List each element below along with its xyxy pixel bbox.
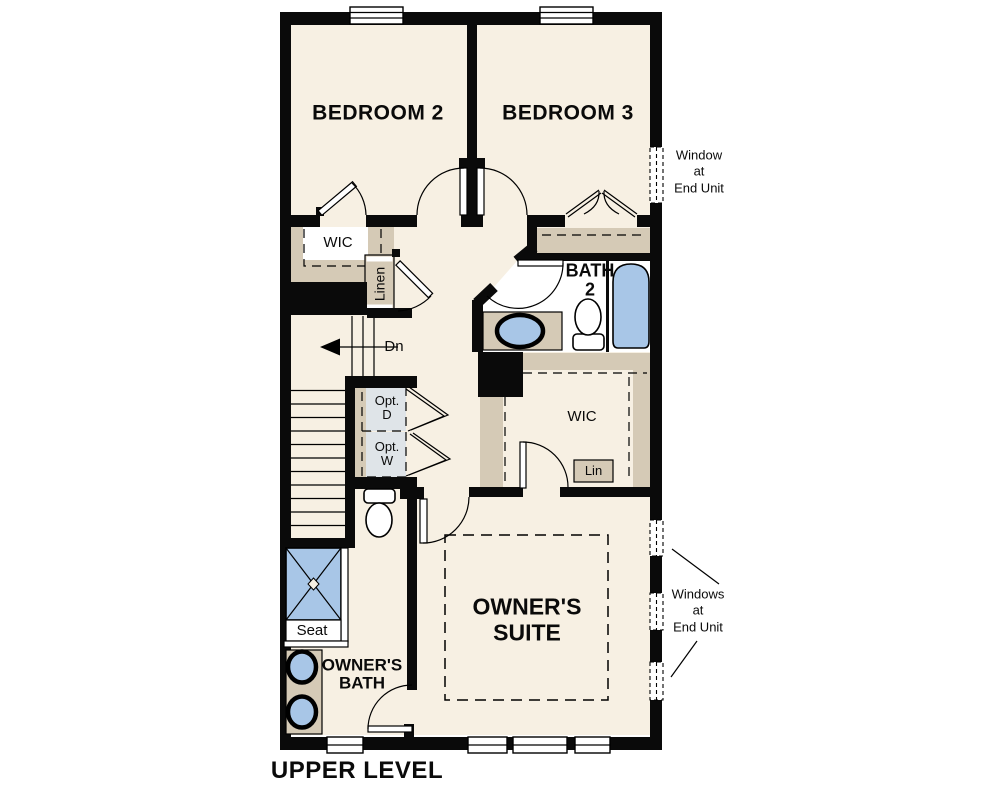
opt-w-line2: W [375,454,400,468]
room-label-linen: Linen [372,267,387,301]
room-label-wic-bedroom2: WIC [323,235,352,251]
opt-d-line2: D [375,408,400,422]
floor-plan: BEDROOM 2 BEDROOM 3 WIC Linen BATH 2 Dn … [0,0,1000,800]
window-note-line1: Window [674,148,724,164]
room-label-owners-suite: OWNER'S SUITE [473,594,582,647]
windows-note-line2: at [672,603,725,619]
window-note-line3: End Unit [674,180,724,196]
bath2-toilet [573,299,604,350]
window-note-line2: at [674,164,724,180]
windows-note-line1: Windows [672,587,725,603]
room-label-owners-wic: WIC [567,409,596,425]
annotation-window-end-unit: Window at End Unit [674,148,724,197]
stairs-dn-label: Dn [384,339,403,355]
opt-w-line1: Opt. [375,440,400,454]
bath2-line2: 2 [566,281,615,300]
label-lin: Lin [585,464,602,478]
floor-plan-graphics [0,0,1000,800]
bath2-line1: BATH [566,262,615,281]
owners-toilet [364,489,395,537]
room-label-bedroom2: BEDROOM 2 [312,103,444,126]
bedroom2-window [350,7,403,24]
windows-note-line3: End Unit [672,619,725,635]
room-label-bedroom3: BEDROOM 3 [502,103,634,126]
owners-suite-line2: SUITE [473,620,582,646]
room-label-bath2: BATH 2 [566,262,615,301]
owners-bath-line1: OWNER'S [322,657,403,675]
label-opt-washer: Opt. W [375,440,400,468]
bedroom3-window [540,7,593,24]
bath2-vanity [483,312,562,350]
page-title: UPPER LEVEL [271,758,443,784]
room-label-owners-bath: OWNER'S BATH [322,657,403,694]
annotation-windows-end-unit: Windows at End Unit [672,587,725,636]
opt-d-line1: Opt. [375,394,400,408]
label-opt-dryer: Opt. D [375,394,400,422]
owners-bath-line2: BATH [322,675,403,693]
owners-vanity [286,650,322,734]
owners-suite-line1: OWNER'S [473,594,582,620]
label-seat: Seat [297,623,328,639]
